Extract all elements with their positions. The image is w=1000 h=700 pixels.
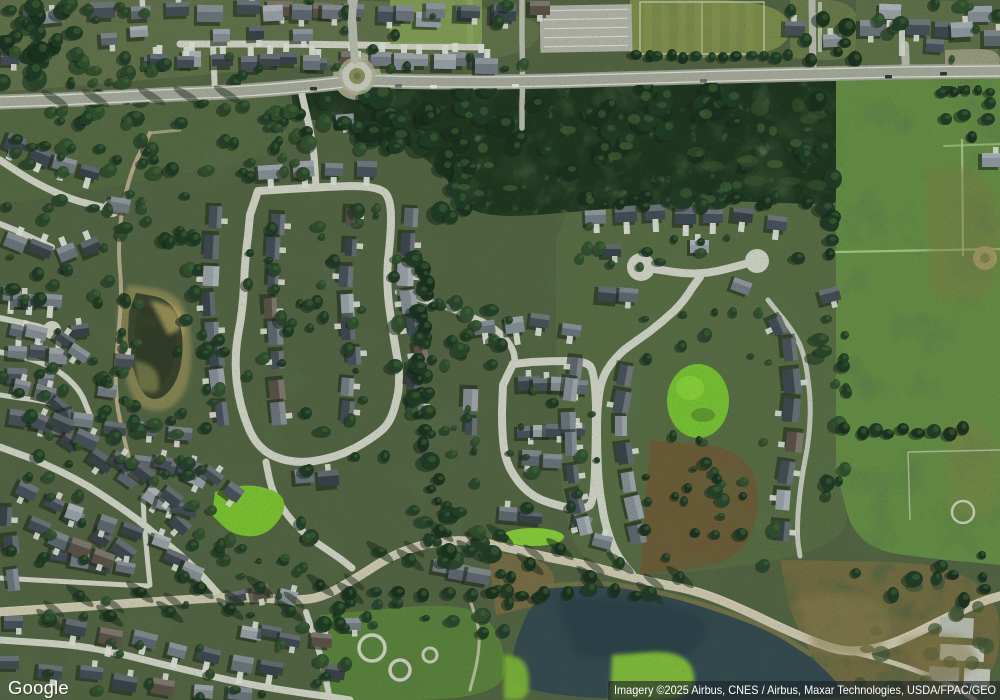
svg-text:Imagery ©2025 Airbus, CNES / A: Imagery ©2025 Airbus, CNES / Airbus, Max… [614,683,996,697]
svg-text:Google: Google [8,677,69,698]
